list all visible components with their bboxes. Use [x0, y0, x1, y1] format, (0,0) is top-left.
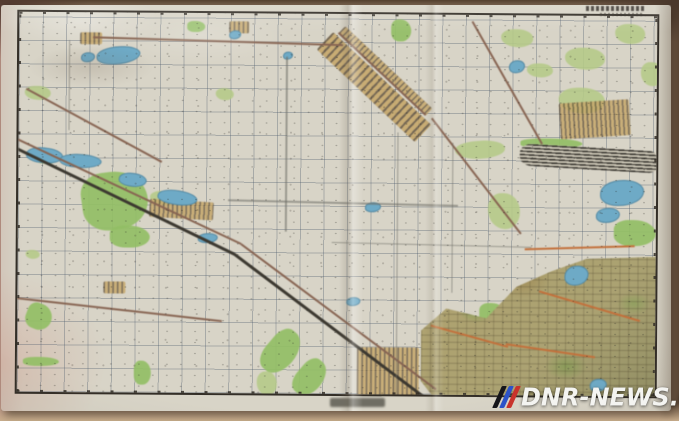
railway-yard — [519, 143, 659, 173]
road — [431, 118, 522, 235]
lake — [96, 45, 141, 65]
forest-patch — [110, 225, 150, 247]
field-line — [332, 242, 532, 248]
dnr-flag-stripes-icon — [492, 386, 521, 408]
scale-bar-smudge — [330, 398, 385, 407]
field-line — [228, 199, 458, 206]
forest-patch — [391, 19, 411, 41]
road — [93, 36, 343, 46]
pond — [596, 208, 620, 223]
title-line-smudge — [586, 6, 644, 11]
forest-patch — [614, 220, 656, 246]
watermark: DNR-NEWS.COM — [497, 383, 679, 411]
forest-patch — [501, 29, 533, 47]
forest-patch — [615, 24, 645, 44]
pond — [600, 180, 644, 206]
city-area — [421, 255, 660, 399]
field-line — [285, 57, 288, 232]
forest-patch — [257, 371, 277, 395]
feature-layer — [17, 12, 658, 396]
field-line — [69, 40, 71, 130]
forest-strip — [23, 357, 59, 366]
forest-patch — [216, 88, 234, 100]
field-line — [451, 143, 453, 293]
watermark-text: DNR-NEWS.COM — [521, 382, 679, 411]
pond — [229, 30, 241, 39]
hamlet — [103, 281, 125, 293]
map-paper-sheet — [1, 5, 671, 411]
pond — [346, 297, 360, 306]
forest-patch — [527, 63, 553, 77]
settlement — [559, 99, 631, 139]
highway — [525, 245, 635, 250]
forest-patch — [641, 62, 660, 86]
forest-strip — [287, 354, 333, 398]
forest-patch — [134, 361, 151, 385]
map-frame — [15, 10, 660, 398]
forest-patch — [26, 250, 40, 259]
photo-of-topographic-map: DNR-NEWS.COM — [0, 0, 679, 421]
forest-patch — [565, 48, 605, 70]
forest-patch — [187, 21, 205, 32]
pond — [509, 60, 525, 73]
forest-ribbon — [22, 300, 55, 333]
settlement-band — [317, 32, 432, 142]
pond — [283, 52, 293, 60]
lake — [81, 52, 95, 62]
